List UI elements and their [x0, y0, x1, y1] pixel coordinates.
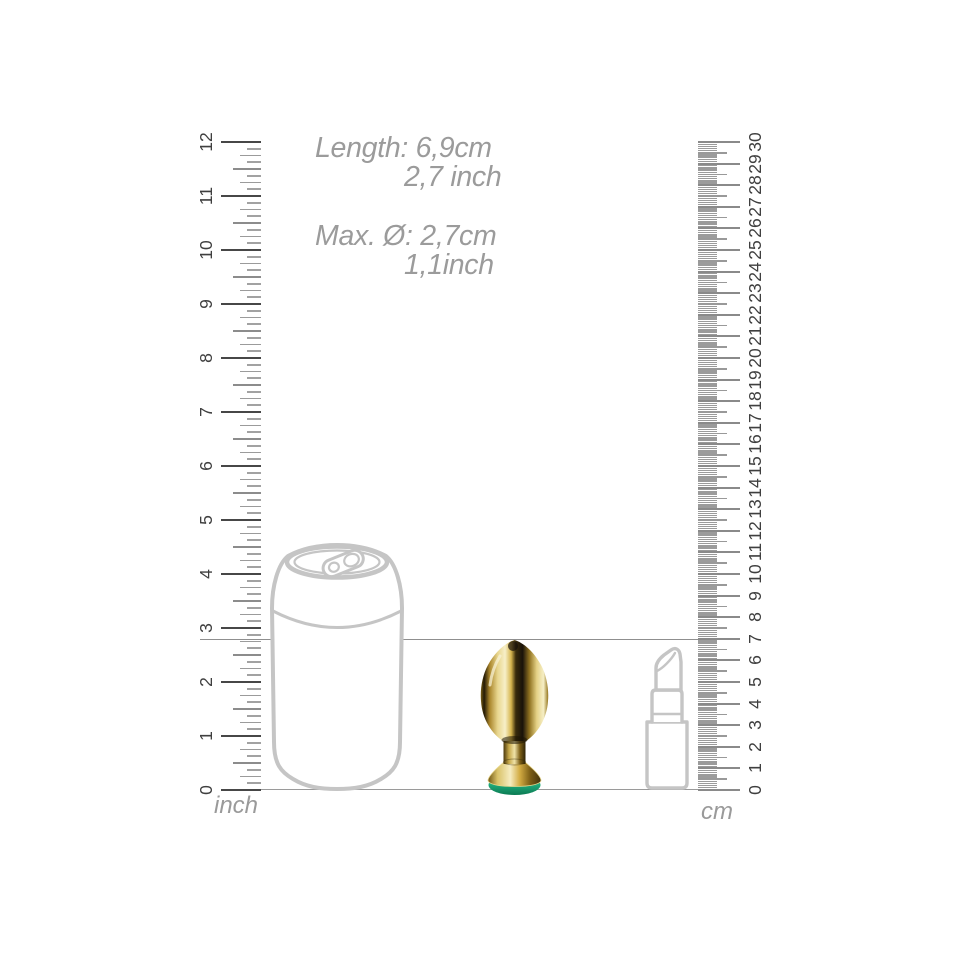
product-bulb	[481, 640, 548, 741]
product-base	[488, 762, 541, 787]
scene-graphics	[0, 0, 960, 960]
lipstick-outline	[647, 649, 687, 788]
soda-can-outline	[272, 545, 402, 789]
dimension-diagram: Length: 6,9cm 2,7 inch Max. Ø: 2,7cm 1,1…	[0, 0, 960, 960]
product-gold-plug	[481, 640, 548, 795]
